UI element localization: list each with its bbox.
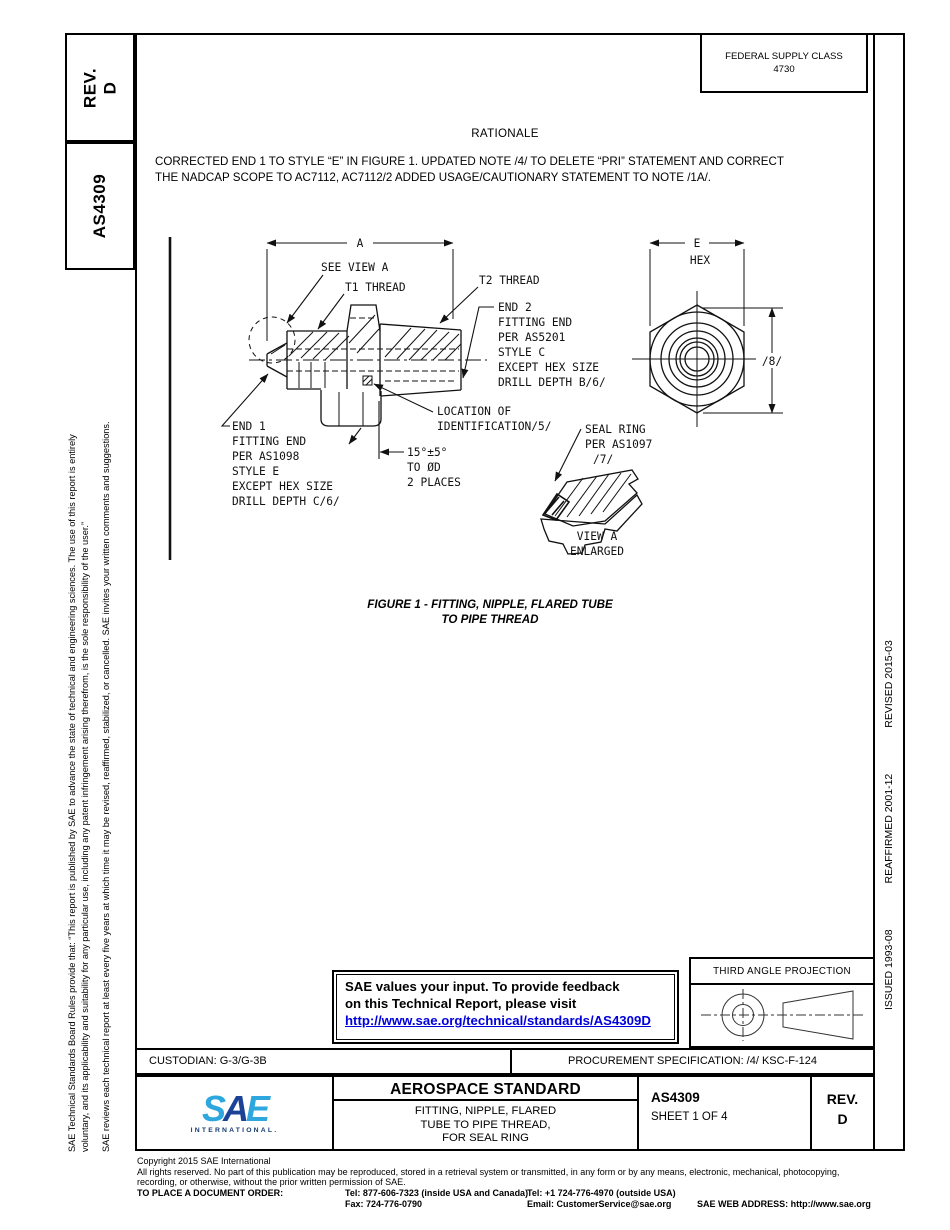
svg-text:PER AS5201: PER AS5201: [498, 331, 565, 344]
svg-text:PER AS1097: PER AS1097: [585, 438, 652, 451]
footer-tel-inside: Tel: 877-606-7323 (inside USA and Canada…: [345, 1188, 528, 1199]
svg-text:IDENTIFICATION/5/: IDENTIFICATION/5/: [437, 420, 552, 433]
svg-text:STYLE E: STYLE E: [232, 465, 279, 478]
view-a-enlarged-label: ENLARGED: [570, 545, 624, 558]
t2-thread-label: T2 THREAD: [479, 274, 540, 287]
title-block-rev-label: REV.: [812, 1089, 873, 1109]
doc-number-vertical: AS4309: [90, 174, 110, 238]
document-title-line-3: FOR SEAL RING: [334, 1132, 637, 1146]
svg-text:EXCEPT HEX SIZE: EXCEPT HEX SIZE: [232, 480, 333, 493]
svg-text:SEAL RING: SEAL RING: [585, 423, 646, 436]
title-block-rev-cell: REV. D: [810, 1077, 873, 1149]
see-view-a-label: SEE VIEW A: [321, 261, 389, 274]
svg-text:PER AS1098: PER AS1098: [232, 450, 300, 463]
figure-drawing: A SEE VIEW A T1 THREAD T2 THREAD END 2 F…: [135, 223, 875, 595]
federal-supply-class-box: FEDERAL SUPPLY CLASS 4730: [700, 33, 868, 93]
svg-text:END 1: END 1: [232, 420, 266, 433]
svg-text:FITTING END: FITTING END: [498, 316, 572, 329]
svg-text:/7/: /7/: [593, 453, 613, 466]
svg-text:FITTING END: FITTING END: [232, 435, 306, 448]
svg-text:TO ØD: TO ØD: [407, 461, 441, 474]
svg-text:2 PLACES: 2 PLACES: [407, 476, 461, 489]
document-page: ISSUED 1993-08REAFFIRMED 2001-12REVISED …: [0, 0, 950, 1230]
third-angle-projection-symbol: [691, 985, 873, 1044]
title-block-center: AEROSPACE STANDARD FITTING, NIPPLE, FLAR…: [332, 1077, 637, 1149]
third-angle-projection-box: THIRD ANGLE PROJECTION: [689, 957, 875, 1048]
feedback-link[interactable]: http://www.sae.org/technical/standards/A…: [345, 1012, 666, 1029]
footer-email: Email: CustomerService@sae.org: [527, 1199, 671, 1210]
svg-text:15°±5°: 15°±5°: [407, 446, 447, 459]
svg-text:DRILL DEPTH B/6/: DRILL DEPTH B/6/: [498, 376, 606, 389]
figure-caption-line-1: FIGURE 1 - FITTING, NIPPLE, FLARED TUBE: [135, 597, 845, 612]
figure-caption: FIGURE 1 - FITTING, NIPPLE, FLARED TUBE …: [135, 597, 845, 627]
footer-tel-outside: Tel: +1 724-776-4970 (outside USA): [527, 1188, 676, 1199]
revised-date: REVISED 2015-03: [883, 640, 895, 728]
view-a-label: VIEW A: [577, 530, 618, 543]
feedback-line-2: on this Technical Report, please visit: [345, 995, 666, 1012]
rationale-body-line-1: CORRECTED END 1 TO STYLE “E” IN FIGURE 1…: [155, 154, 865, 170]
document-title-line-2: TUBE TO PIPE THREAD,: [334, 1119, 637, 1133]
custodian-cell: CUSTODIAN: G-3/G-3B: [137, 1050, 512, 1073]
footer-order-label: TO PLACE A DOCUMENT ORDER:: [137, 1188, 283, 1199]
svg-text:END 2: END 2: [498, 301, 532, 314]
feedback-box: SAE values your input. To provide feedba…: [332, 970, 679, 1044]
figure-caption-line-2: TO PIPE THREAD: [135, 612, 845, 627]
rev-box: REV. D: [65, 33, 135, 142]
rationale-body: CORRECTED END 1 TO STYLE “E” IN FIGURE 1…: [155, 154, 865, 186]
title-block-rev-value: D: [812, 1109, 873, 1129]
dim-e-label: E: [694, 237, 701, 250]
svg-text:STYLE C: STYLE C: [498, 346, 545, 359]
reaffirmed-date: REAFFIRMED 2001-12: [883, 774, 895, 884]
hex-label: HEX: [690, 254, 710, 267]
svg-text:LOCATION OF: LOCATION OF: [437, 405, 511, 418]
footer: Copyright 2015 SAE International All rig…: [137, 1156, 927, 1210]
revision-history-vertical-text: ISSUED 1993-08REAFFIRMED 2001-12REVISED …: [883, 640, 895, 1010]
svg-text:EXCEPT HEX SIZE: EXCEPT HEX SIZE: [498, 361, 599, 374]
title-block: SAE INTERNATIONAL. AEROSPACE STANDARD FI…: [135, 1075, 875, 1151]
sheet-number: SHEET 1 OF 4: [651, 1111, 810, 1123]
feedback-line-1: SAE values your input. To provide feedba…: [345, 978, 666, 995]
doc-number-box: AS4309: [65, 142, 135, 270]
disclaimer-line-1: SAE Technical Standards Board Rules prov…: [67, 434, 77, 1152]
footer-rights-line-2: recording, or otherwise, without the pri…: [137, 1177, 927, 1188]
standard-type: AEROSPACE STANDARD: [334, 1077, 637, 1101]
disclaimer-line-3: SAE reviews each technical report at lea…: [101, 421, 111, 1152]
rev-box-text: REV. D: [80, 67, 119, 107]
footer-fax: Fax: 724-776-0790: [345, 1199, 422, 1210]
federal-supply-class-value: 4730: [702, 63, 866, 76]
disclaimer-line-2: voluntary, and its applicability and sui…: [80, 522, 90, 1152]
location-id-note: LOCATION OF IDENTIFICATION/5/: [437, 405, 552, 433]
federal-supply-class-label: FEDERAL SUPPLY CLASS: [702, 50, 866, 63]
end2-note: END 2 FITTING END PER AS5201 STYLE C EXC…: [498, 301, 606, 389]
seal-ring-note: SEAL RING PER AS1097 /7/: [585, 423, 652, 466]
title-block-number-cell: AS4309 SHEET 1 OF 4: [637, 1077, 810, 1149]
document-title: FITTING, NIPPLE, FLARED TUBE TO PIPE THR…: [334, 1105, 637, 1146]
dim-a-label: A: [357, 237, 364, 250]
custodian-row: CUSTODIAN: G-3/G-3B PROCUREMENT SPECIFIC…: [135, 1048, 875, 1075]
angle-note: 15°±5° TO ØD 2 PLACES: [407, 446, 461, 489]
sae-logo-subtitle: INTERNATIONAL.: [191, 1127, 279, 1134]
sae-logo-word: SAE: [202, 1092, 267, 1126]
footer-rights-line-1: All rights reserved. No part of this pub…: [137, 1167, 927, 1178]
rationale-body-line-2: THE NADCAP SCOPE TO AC7112, AC7112/2 ADD…: [155, 170, 865, 186]
footer-web: SAE WEB ADDRESS: http://www.sae.org: [697, 1199, 871, 1210]
third-angle-projection-title: THIRD ANGLE PROJECTION: [691, 959, 873, 985]
t1-thread-label: T1 THREAD: [345, 281, 406, 294]
title-block-doc-number: AS4309: [651, 1090, 810, 1105]
sae-logo: SAE INTERNATIONAL.: [137, 1077, 332, 1149]
flag-8-label: /8/: [762, 355, 782, 368]
footer-copyright: Copyright 2015 SAE International: [137, 1156, 927, 1167]
document-title-line-1: FITTING, NIPPLE, FLARED: [334, 1105, 637, 1119]
procurement-spec-cell: PROCUREMENT SPECIFICATION: /4/ KSC-F-124: [512, 1050, 873, 1073]
svg-text:DRILL DEPTH C/6/: DRILL DEPTH C/6/: [232, 495, 340, 508]
end1-note: END 1 FITTING END PER AS1098 STYLE E EXC…: [232, 420, 340, 508]
rev-label: REV.: [80, 67, 100, 107]
rationale-title: RATIONALE: [135, 127, 875, 140]
rev-value: D: [100, 67, 120, 107]
issued-date: ISSUED 1993-08: [883, 929, 895, 1010]
